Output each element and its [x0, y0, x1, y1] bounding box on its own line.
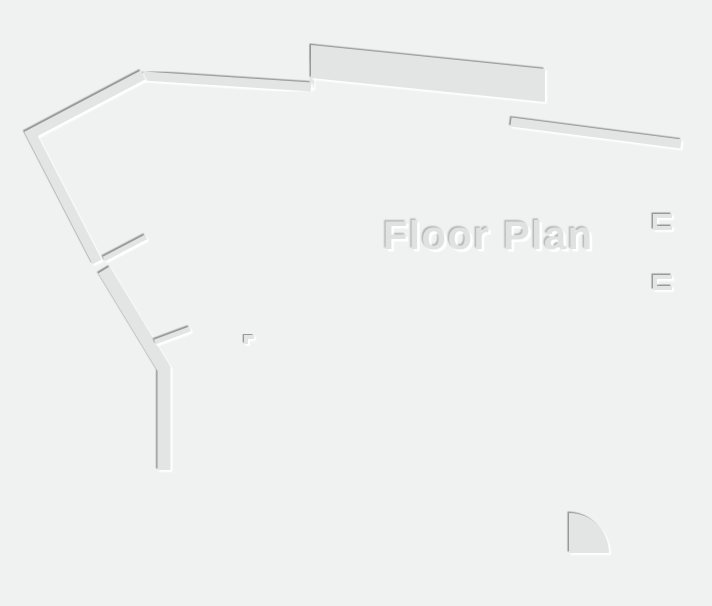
- top-wall: [143, 76, 311, 87]
- door-leaf-upper: [104, 237, 146, 259]
- door-leaf-lower: [155, 329, 190, 342]
- exterior-walls: [31, 45, 684, 559]
- left-lower-diagonal-wall: [104, 270, 164, 470]
- entry-door-swing: [569, 513, 609, 553]
- floor-plan-title: Floor Plan: [383, 216, 594, 256]
- top-thick-slab: [311, 45, 545, 102]
- left-upper-diagonal-wall: [31, 75, 143, 262]
- floor-plan-canvas: [0, 0, 712, 606]
- window-marker-2: [655, 277, 672, 288]
- floor-plan-page: Floor Plan: [0, 0, 712, 606]
- window-marker-1: [655, 216, 672, 228]
- top-right-slanted-wall: [511, 122, 681, 144]
